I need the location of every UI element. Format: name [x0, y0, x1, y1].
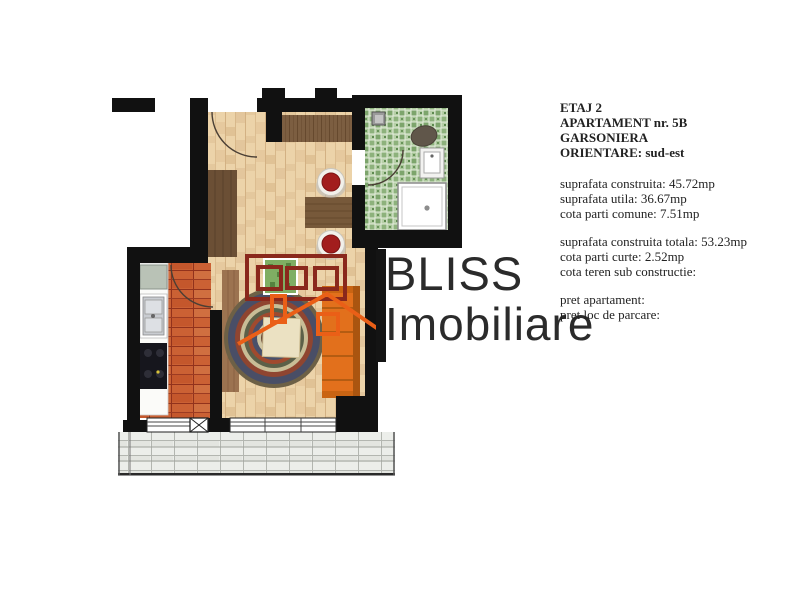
floor-label: ETAJ 2: [560, 100, 687, 115]
land-under-line: cota teren sub constructie:: [560, 264, 747, 279]
price-details: pret apartament: pret loc de parcare:: [560, 292, 660, 322]
listing-page: BLISS Imobiliare ETAJ 2 APARTAMENT nr. 5…: [0, 0, 800, 600]
apartment-price-line: pret apartament:: [560, 292, 660, 307]
shower: [398, 183, 446, 230]
unit-type-label: GARSONIERA: [560, 130, 687, 145]
usable-area-line: suprafata utila: 36.67mp: [560, 191, 715, 206]
shaft-symbol: [190, 418, 208, 432]
window-kitchen: [147, 418, 190, 432]
parking-price-line: pret loc de parcare:: [560, 307, 660, 322]
area-details: suprafata construita: 45.72mp suprafata …: [560, 176, 715, 221]
vent-icon: [372, 112, 385, 125]
built-area-line: suprafata construita: 45.72mp: [560, 176, 715, 191]
logo-name: BLISS: [385, 250, 523, 297]
common-share-line: cota parti comune: 7.51mp: [560, 206, 715, 221]
yard-share-line: cota parti curte: 2.52mp: [560, 249, 747, 264]
orientation-label: ORIENTARE: sud-est: [560, 145, 687, 160]
kitchen-sink: [140, 294, 167, 338]
balcony: [118, 432, 395, 476]
bathroom-sink: [420, 148, 444, 178]
chair-top: [316, 169, 346, 199]
total-built-area-line: suprafata construita totala: 53.23mp: [560, 234, 747, 249]
fridge: [140, 265, 167, 289]
window-living: [230, 418, 336, 432]
dining-table: [305, 197, 355, 228]
stove: [140, 343, 167, 389]
wardrobe: [282, 115, 352, 142]
total-details: suprafata construita totala: 53.23mp cot…: [560, 234, 747, 279]
listing-header: ETAJ 2 APARTAMENT nr. 5B GARSONIERA ORIE…: [560, 100, 687, 160]
apartment-label: APARTAMENT nr. 5B: [560, 115, 687, 130]
